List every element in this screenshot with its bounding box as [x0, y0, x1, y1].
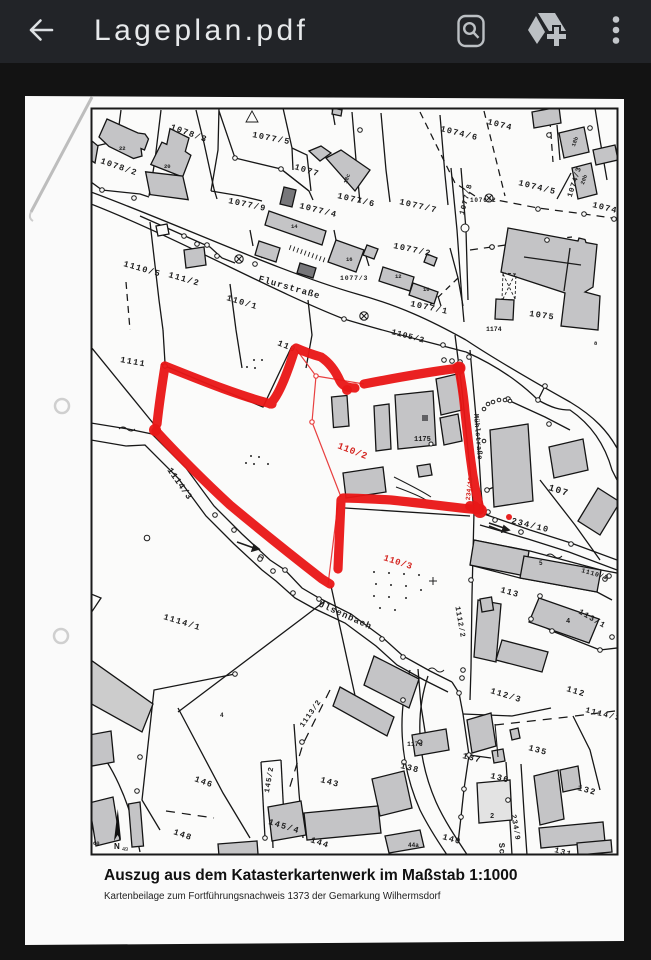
svg-text:4: 4	[566, 618, 570, 626]
svg-text:Auszug aus dem Katasterkartenw: Auszug aus dem Katasterkartenwerk im Maß…	[104, 867, 518, 884]
svg-text:20: 20	[164, 163, 171, 170]
svg-text:N: N	[114, 842, 120, 851]
svg-text:14: 14	[291, 223, 298, 230]
svg-text:49: 49	[122, 847, 128, 853]
svg-text:5: 5	[539, 560, 543, 567]
svg-text:1176: 1176	[407, 741, 423, 748]
svg-text:1174: 1174	[486, 326, 502, 333]
svg-text:16: 16	[346, 256, 353, 263]
svg-text:4: 4	[220, 712, 224, 719]
svg-text:10: 10	[423, 286, 430, 293]
svg-text:12: 12	[395, 273, 402, 280]
svg-text:44a: 44a	[408, 842, 419, 849]
svg-text:Lageplan.pdf: Lageplan.pdf	[94, 14, 308, 47]
svg-text:1076/2: 1076/2	[470, 197, 496, 204]
svg-text:60: 60	[93, 840, 100, 847]
svg-text:22: 22	[119, 145, 126, 152]
svg-text:2: 2	[490, 813, 494, 821]
svg-text:1077/3: 1077/3	[340, 275, 368, 282]
svg-text:1175: 1175	[414, 436, 431, 444]
svg-text:Kartenbeilage zum Fortführungs: Kartenbeilage zum Fortführungsnachweis 1…	[104, 891, 441, 902]
